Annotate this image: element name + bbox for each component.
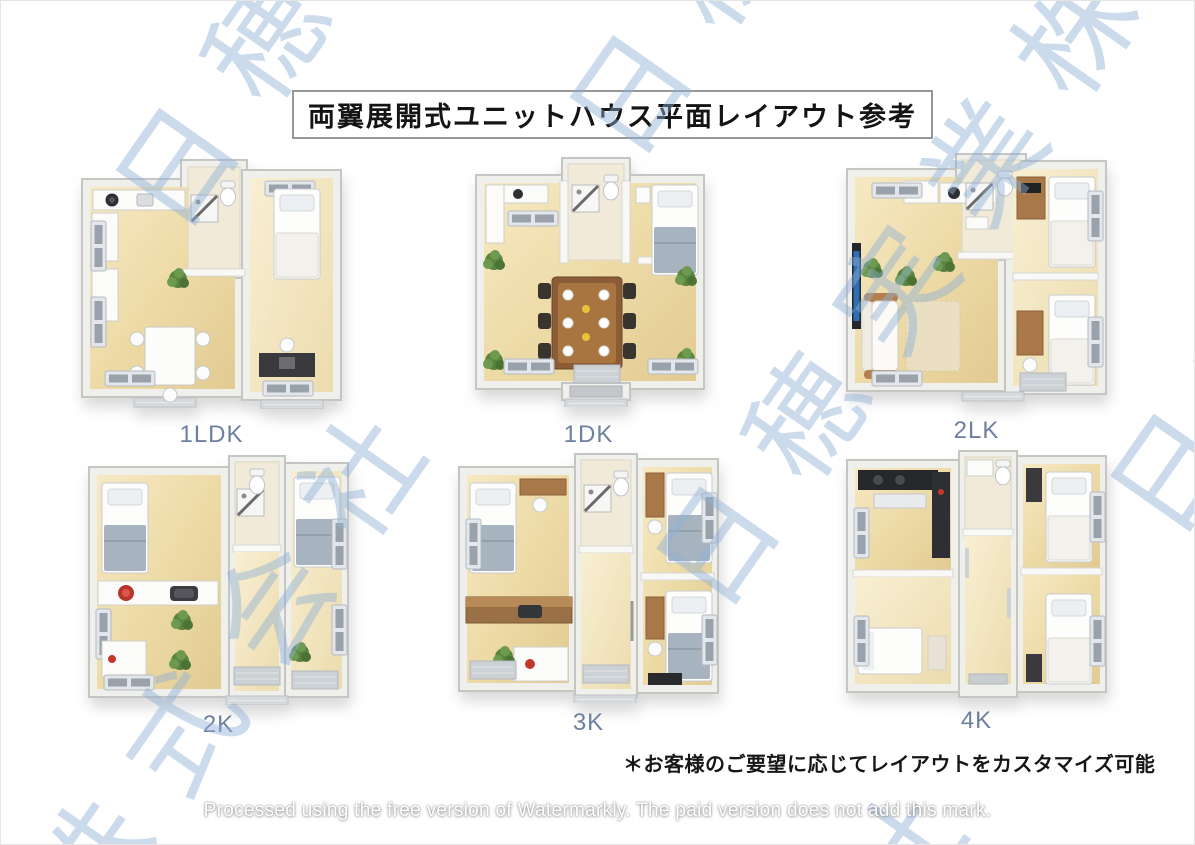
watermarkly-footer-text: Processed using the free version of Wate… — [1, 800, 1194, 822]
1dk-floor-plan — [456, 155, 721, 407]
entrance-mat — [969, 674, 1007, 684]
customization-note: ＊お客様のご要望に応じてレイアウトをカスタマイズ可能 — [623, 748, 1155, 777]
page-title: 両翼展開式ユニットハウス平面レイアウト参考 — [292, 90, 933, 139]
plan-label-3k: 3K — [456, 709, 721, 737]
plan-label-1ldk: 1LDK — [79, 421, 344, 449]
plan-label-1dk: 1DK — [456, 421, 721, 449]
2k-floor-plan — [86, 453, 351, 705]
4k-floor-plan — [844, 448, 1109, 700]
entrance-mat — [234, 667, 280, 685]
dining-table — [538, 277, 636, 369]
2lk-floor-plan — [844, 151, 1109, 403]
layout-reference-sheet: 両翼展開式ユニットハウス平面レイアウト参考 — [0, 0, 1195, 845]
plan-label-2k: 2K — [86, 711, 351, 739]
1ldk-floor-plan — [79, 157, 344, 409]
plan-label-2lk: 2LK — [844, 417, 1109, 445]
entrance-mat — [570, 365, 622, 397]
entrance-mat — [583, 665, 629, 683]
3k-floor-plan — [456, 451, 721, 703]
plan-label-4k: 4K — [844, 707, 1109, 735]
